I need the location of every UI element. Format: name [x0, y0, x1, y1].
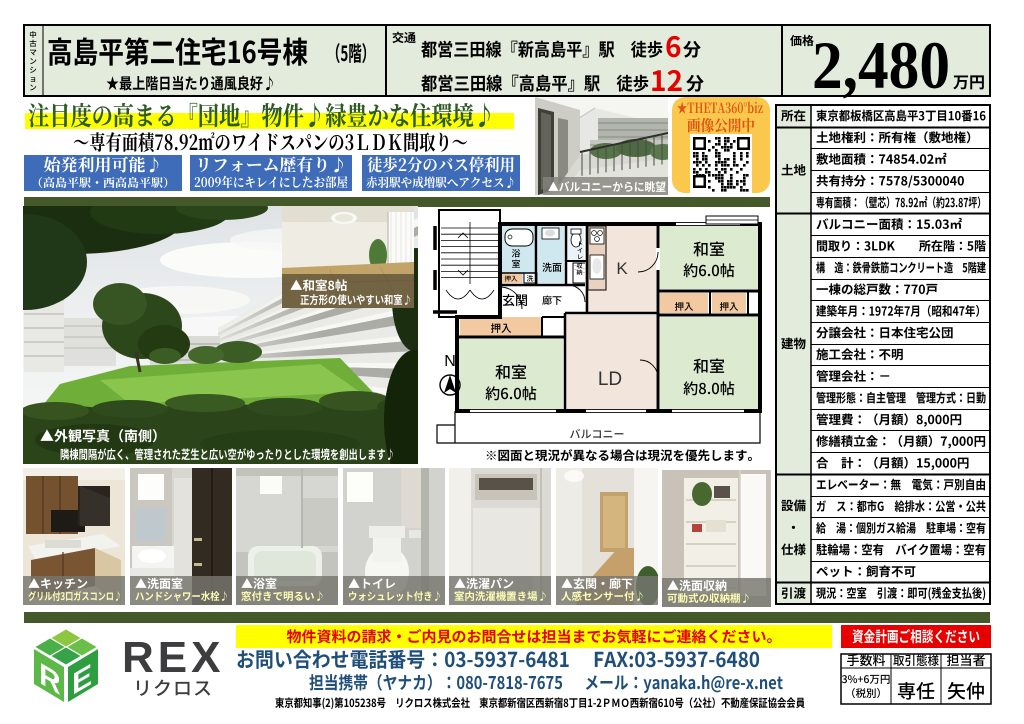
svg-text:R: R [39, 656, 61, 702]
svg-text:LD: LD [598, 369, 622, 390]
svg-text:K: K [616, 259, 628, 278]
svg-text:REX: REX [122, 633, 224, 682]
svg-text:N: N [444, 353, 456, 370]
svg-text:2,480: 2,480 [812, 27, 950, 103]
